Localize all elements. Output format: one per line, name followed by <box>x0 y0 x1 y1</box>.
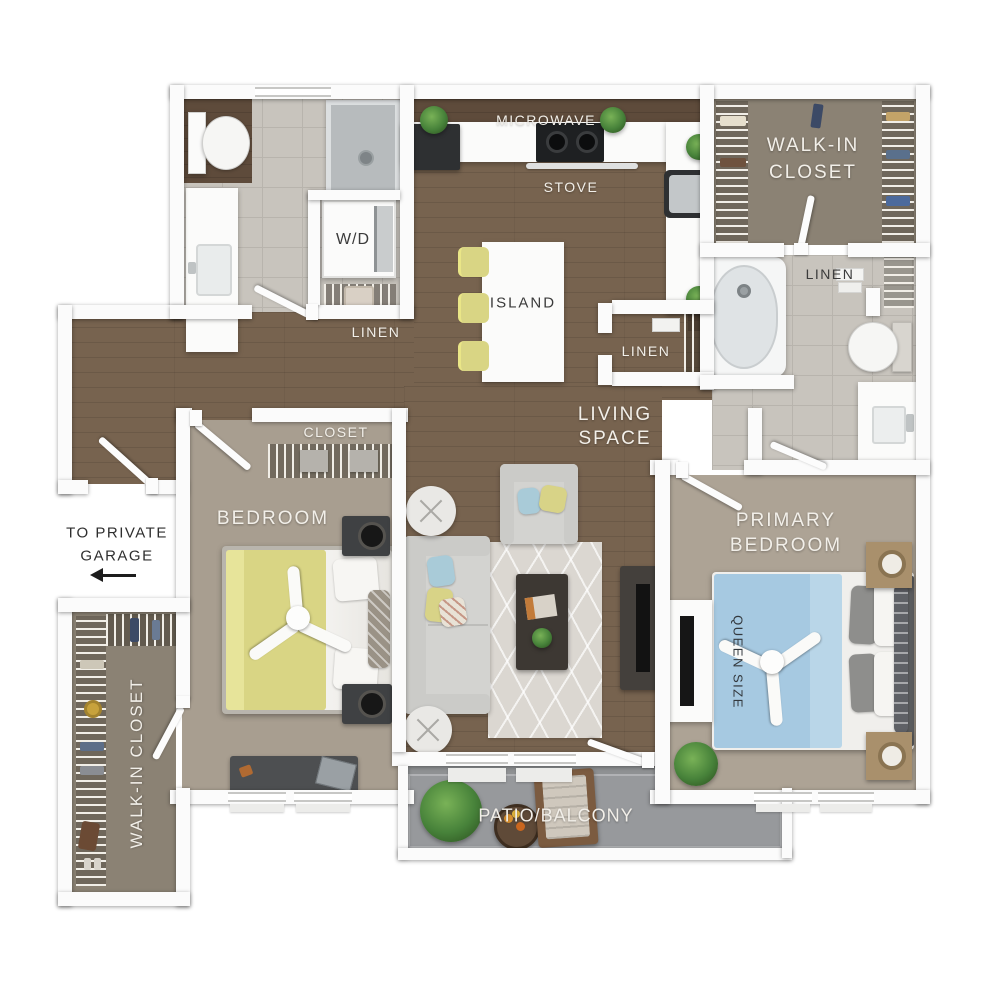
walkin-top-clothes-2 <box>720 158 746 167</box>
walkin-bottom-clothes-2 <box>152 620 160 640</box>
label-living-line1: LIVING <box>578 404 652 426</box>
label-closet: CLOSET <box>303 424 368 440</box>
bedroom-closet-box-1 <box>300 450 328 472</box>
wall-bath1-bottom-a <box>170 305 252 319</box>
bedroom-closet-box-2 <box>350 450 378 472</box>
coffee-table-book <box>525 594 558 620</box>
wall-bedroom-bottom <box>170 790 414 804</box>
wall-linen-jamb-b <box>598 355 612 385</box>
label-primary-line2: BEDROOM <box>730 535 842 557</box>
stove-burner-left <box>546 131 568 153</box>
bath1-door-hinge <box>306 304 318 320</box>
window-living-b <box>514 754 576 764</box>
bed1-pillow-accent <box>368 590 390 668</box>
washer-dryer-door <box>374 206 393 272</box>
island-stool-1 <box>458 247 489 277</box>
window-bedroom-sill-a <box>230 804 284 812</box>
bedroom-closet-shelf <box>268 444 398 478</box>
label-walkin-bottom: WALK-IN CLOSET <box>127 678 147 849</box>
toilet2-bowl <box>848 322 898 372</box>
label-queen-size: QUEEN SIZE <box>731 615 746 709</box>
label-walkin-top-line2: CLOSET <box>769 162 857 184</box>
stove-burner-right <box>576 131 598 153</box>
wall-linen-bottom <box>612 372 714 386</box>
island-stool-2 <box>458 293 489 323</box>
garage-arrow-head <box>90 568 103 582</box>
sofa-pillow-blue <box>426 554 456 587</box>
walkin-bottom-shoes-1 <box>84 858 91 870</box>
window-primary-a <box>754 792 812 802</box>
walkin-top-clothes-1 <box>720 116 746 126</box>
side-table-top <box>406 486 456 536</box>
shower1-drain <box>358 150 374 166</box>
coffee-table-plant <box>532 628 552 648</box>
label-garage-line2: GARAGE <box>80 548 153 565</box>
walkin-bottom-door-hinge <box>176 696 190 708</box>
wall-closetbl-left <box>58 598 72 906</box>
primary-plant <box>674 742 718 786</box>
wall-bath1-left <box>170 85 184 319</box>
walkin-top-clothes-5 <box>886 196 910 206</box>
window-bedroom-a <box>228 792 286 802</box>
nightstand1b-record <box>358 690 386 718</box>
patio-door-hinge <box>642 752 654 768</box>
wall-exterior-right <box>916 85 930 804</box>
hall-linen-towels <box>652 318 680 332</box>
walkin-top-rack-right <box>882 101 914 243</box>
label-walkin-top-line1: WALK-IN <box>767 135 859 157</box>
window-living-a <box>446 754 508 764</box>
vanity1-faucet <box>188 262 196 274</box>
wall-linen-jamb-a <box>598 303 612 333</box>
walkin-bottom-shoes-2 <box>94 858 101 870</box>
wall-hall-bottom-a <box>58 480 88 494</box>
vanity2-sink <box>872 406 906 444</box>
window-living-sill-b <box>516 768 572 782</box>
wall-primary-left <box>655 460 670 804</box>
nightstand2-top-lamp <box>878 550 906 578</box>
toilet1-bowl <box>202 116 250 170</box>
label-microwave: MICROWAVE <box>496 112 596 128</box>
window-primary-sill-a <box>756 804 810 812</box>
label-stove: STOVE <box>544 179 599 195</box>
floor-plan: MICROWAVE STOVE ISLAND WALK-IN CLOSET LI… <box>0 0 1000 1000</box>
wall-patio-left <box>398 766 408 858</box>
vanity1-sink <box>196 244 232 296</box>
side-table-bottom <box>404 706 452 754</box>
vanity2-faucet <box>906 414 914 432</box>
wall-closetbl-top <box>58 598 190 612</box>
walkin-top-door-hinge <box>794 243 808 255</box>
wall-tub-bottom <box>700 375 794 389</box>
primary-dresser-tv <box>680 616 694 706</box>
island-stool-3 <box>458 341 489 371</box>
label-garage-line1: TO PRIVATE <box>66 525 168 542</box>
walkin-bottom-bag <box>84 700 102 718</box>
label-linen-laundry: LINEN <box>352 324 401 340</box>
wall-bedroom-right <box>392 408 406 752</box>
wall-patio-bottom <box>398 848 792 860</box>
coffee-table <box>516 574 568 670</box>
label-washer-dryer: W/D <box>336 231 370 249</box>
oven-handle <box>526 163 638 169</box>
label-patio: PATIO/BALCONY <box>478 806 633 827</box>
patio-plant <box>420 780 482 842</box>
walkin-top-clothes-4 <box>886 150 910 159</box>
wall-bedroom-top-b <box>252 408 408 422</box>
kitchen-plant-1 <box>420 106 448 134</box>
armchair-pillow-blue <box>517 487 542 515</box>
bathtub-basin <box>710 265 778 369</box>
walkin-top-clothes-3 <box>886 112 910 121</box>
wall-linen-top <box>612 300 714 314</box>
wall-bedroom-left-b <box>176 788 190 906</box>
armchair-pillow-yellow <box>538 484 568 514</box>
kitchen-plant-2 <box>600 107 626 133</box>
bath2-linen-shelf <box>884 256 914 308</box>
wall-bath2-inner <box>866 288 880 316</box>
kitchen-island <box>482 242 564 382</box>
wall-hall-left <box>58 305 72 494</box>
wall-hall-top <box>58 305 184 319</box>
wall-bath1-right <box>400 85 414 319</box>
wall-primary-top-b <box>744 460 930 475</box>
wall-kitchen-right <box>700 85 714 390</box>
wall-closetbl-bottom <box>58 892 190 906</box>
window-bedroom-b <box>294 792 352 802</box>
bedroom-door-hinge <box>190 410 202 426</box>
entry-door-hinge <box>146 478 158 494</box>
label-bedroom: BEDROOM <box>217 508 329 530</box>
wall-walkin-top-bottom-a <box>700 243 784 257</box>
living-tv <box>636 584 650 672</box>
label-living-line2: SPACE <box>578 428 651 450</box>
garage-arrow-shaft <box>102 574 136 577</box>
window-living-sill-a <box>448 768 506 782</box>
walkin-bottom-rack-top <box>106 614 176 646</box>
label-linen-hall: LINEN <box>622 343 671 359</box>
nightstand2-bottom-lamp <box>878 742 906 770</box>
wall-walkin-top-bottom-b <box>848 243 930 257</box>
bathtub-drain <box>737 284 751 298</box>
walkin-bottom-clothes-1 <box>130 618 139 642</box>
sofa-pillow-pattern <box>438 596 468 628</box>
bed2-pillow-pattern <box>894 584 908 734</box>
window-bath1 <box>255 87 331 97</box>
walkin-bottom-clothes-4 <box>80 742 104 751</box>
wall-bath1-bottom-b <box>312 305 414 319</box>
window-primary-sill-b <box>820 804 872 812</box>
wall-laundry-left <box>308 192 320 305</box>
bath2-towel-stack-2 <box>838 282 862 293</box>
label-island: ISLAND <box>490 295 556 312</box>
wall-laundry-top <box>308 190 400 200</box>
walkin-bottom-clothes-5 <box>80 766 104 775</box>
nightstand1-speaker <box>358 522 386 550</box>
window-bedroom-sill-b <box>296 804 350 812</box>
walkin-bottom-clothes-3 <box>80 660 104 669</box>
label-primary-line1: PRIMARY <box>736 510 836 532</box>
label-linen-bath: LINEN <box>806 266 855 282</box>
primary-door-hinge <box>676 462 688 478</box>
wall-bedroom-left-a <box>176 408 190 700</box>
window-primary-b <box>818 792 874 802</box>
